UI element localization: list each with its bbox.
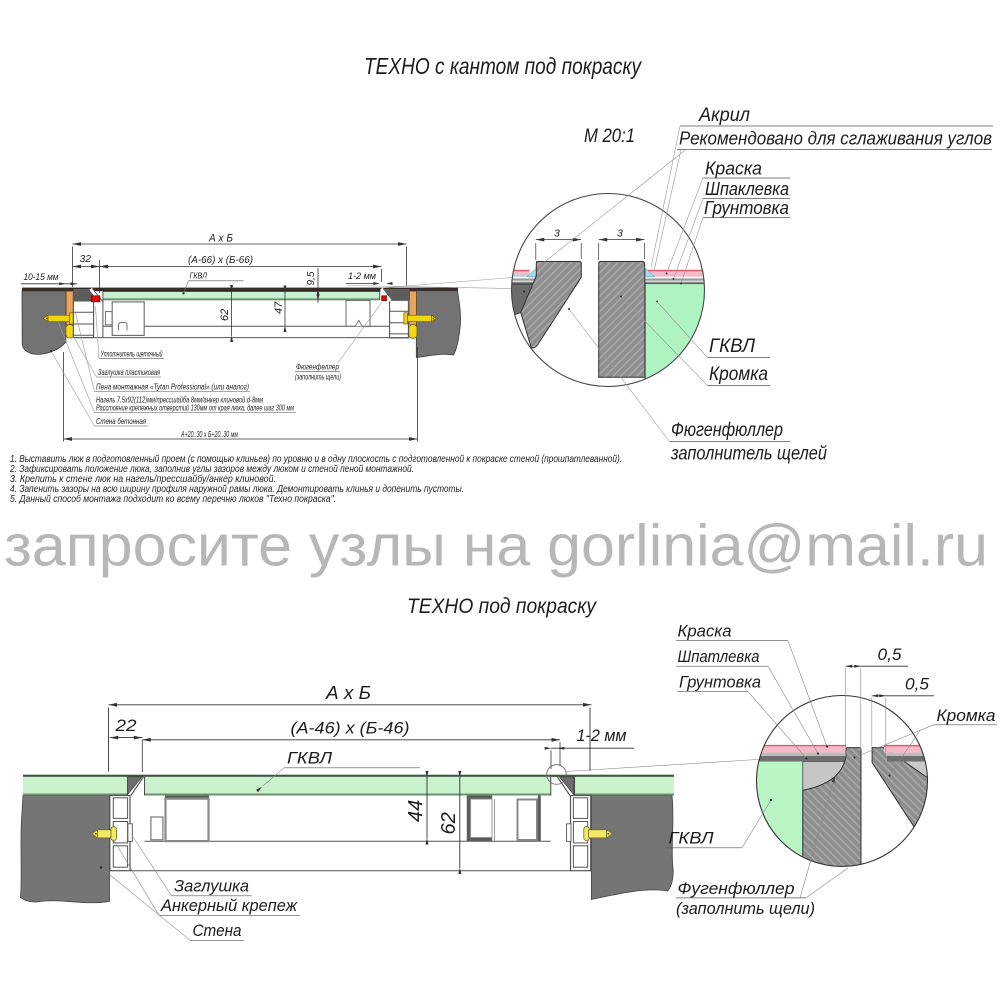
svg-text:0,5: 0,5 (905, 676, 930, 694)
svg-text:А х Б: А х Б (325, 683, 371, 703)
svg-text:Фюгенфеллер: Фюгенфеллер (296, 363, 339, 372)
svg-text:Акрил: Акрил (698, 105, 750, 126)
svg-text:ТЕХНО под покраску: ТЕХНО под покраску (407, 595, 597, 618)
svg-text:Фюгенфюллер: Фюгенфюллер (671, 420, 783, 441)
svg-text:1-2 мм: 1-2 мм (577, 727, 627, 745)
svg-text:(А-46) х (Б-46): (А-46) х (Б-46) (291, 720, 410, 738)
svg-text:32: 32 (80, 253, 92, 265)
svg-text:ГКВЛ: ГКВЛ (669, 830, 715, 848)
svg-text:10-15 мм: 10-15 мм (24, 272, 59, 283)
svg-text:(А-66) х (Б-66): (А-66) х (Б-66) (188, 255, 253, 266)
svg-text:62: 62 (438, 812, 460, 834)
svg-text:47: 47 (273, 301, 285, 314)
svg-text:Заглушка пластиковая: Заглушка пластиковая (98, 368, 161, 377)
svg-text:Краска: Краска (678, 623, 732, 641)
svg-text:3: 3 (617, 228, 623, 240)
svg-text:Заглушка: Заглушка (174, 878, 249, 896)
svg-text:Анкерный крепеж: Анкерный крепеж (160, 897, 298, 915)
svg-text:62: 62 (219, 309, 231, 321)
svg-text:1-2 мм: 1-2 мм (348, 271, 376, 282)
svg-text:Шпаклевка: Шпаклевка (705, 179, 789, 199)
svg-text:запросите узлы на gorlinia@mai: запросите узлы на gorlinia@mail.ru (4, 514, 988, 579)
svg-text:Грунтовка: Грунтовка (679, 674, 761, 692)
svg-text:22: 22 (114, 716, 137, 735)
svg-text:ГКВЛ: ГКВЛ (190, 271, 208, 281)
svg-text:А х Б: А х Б (208, 233, 233, 245)
svg-text:Краска: Краска (705, 159, 762, 179)
svg-text:0,5: 0,5 (878, 646, 903, 664)
svg-text:Рекомендовано для сглаживания: Рекомендовано для сглаживания углов (679, 128, 992, 149)
svg-text:Грунтовка: Грунтовка (704, 198, 789, 218)
svg-text:Расстояние крепежных отверстий: Расстояние крепежных отверстий 130мм от … (96, 404, 294, 413)
svg-text:5. Данный способ монтажа подхо: 5. Данный способ монтажа подходит ко все… (10, 494, 336, 505)
svg-text:ТЕХНО с кантом под покраску: ТЕХНО с кантом под покраску (364, 53, 642, 79)
svg-text:Фугенфюллер: Фугенфюллер (678, 880, 795, 898)
svg-text:Стена: Стена (193, 922, 242, 940)
svg-text:(заполнить щели): (заполнить щели) (676, 900, 815, 918)
svg-text:Шпатлевка: Шпатлевка (678, 648, 760, 666)
svg-text:Пена монтажная «Tytan Professi: Пена монтажная «Tytan Professional» (или… (96, 383, 249, 392)
svg-text:ГКВЛ: ГКВЛ (287, 750, 333, 768)
svg-text:М 20:1: М 20:1 (584, 126, 635, 147)
svg-text:(заполнить щели): (заполнить щели) (295, 373, 341, 382)
svg-text:Уплотнитель щеточный: Уплотнитель щеточный (100, 350, 163, 359)
svg-text:Стена бетонная: Стена бетонная (96, 417, 147, 426)
svg-text:9,5: 9,5 (306, 271, 317, 285)
svg-text:ГКВЛ: ГКВЛ (709, 336, 756, 357)
svg-text:44: 44 (405, 800, 427, 822)
svg-text:Кромка: Кромка (709, 364, 768, 385)
svg-text:А+20..30 х Б+20..30 мм: А+20..30 х Б+20..30 мм (180, 429, 238, 439)
svg-text:Кромка: Кромка (937, 707, 996, 725)
svg-text:заполнитель щелей: заполнитель щелей (670, 444, 827, 465)
svg-text:3: 3 (554, 228, 560, 240)
